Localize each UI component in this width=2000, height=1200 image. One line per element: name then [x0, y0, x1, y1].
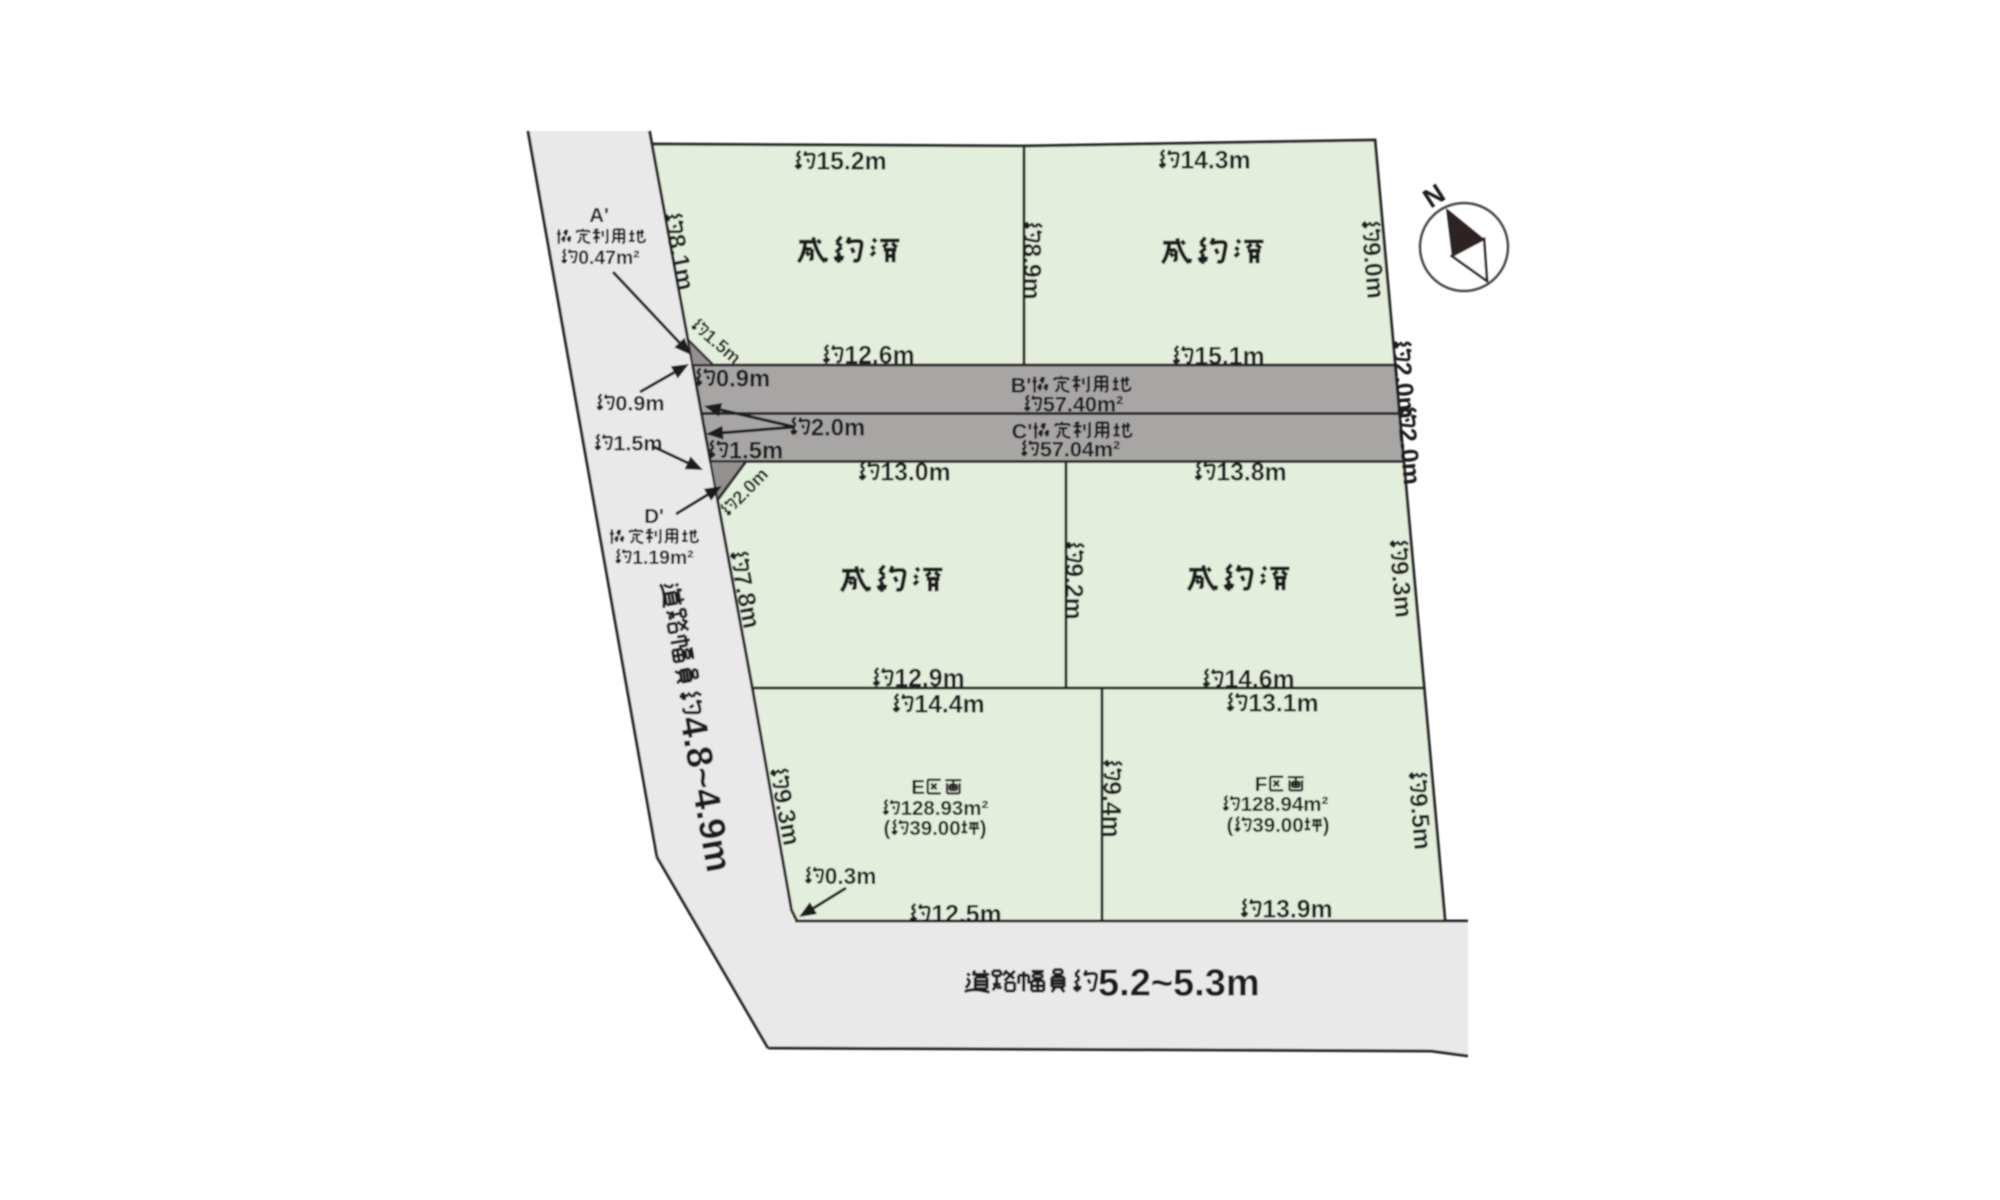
svg-text:(: ( — [884, 817, 891, 840]
svg-text:B': B' — [1011, 373, 1032, 398]
svg-text:14.4m: 14.4m — [914, 692, 984, 719]
svg-text:13.0m: 13.0m — [880, 460, 950, 487]
svg-text:15.2m: 15.2m — [816, 149, 886, 176]
svg-text:13.1m: 13.1m — [1248, 691, 1318, 718]
svg-text:2.0m: 2.0m — [1393, 427, 1425, 486]
svg-text:2.0m: 2.0m — [811, 414, 865, 441]
svg-text:13.8m: 13.8m — [1216, 460, 1286, 487]
svg-text:0.47m²: 0.47m² — [578, 247, 640, 269]
svg-text:8.9m: 8.9m — [1017, 243, 1044, 300]
svg-text:9.0m: 9.0m — [1357, 241, 1389, 300]
svg-text:N: N — [1418, 178, 1451, 214]
svg-text:5.2~5.3m: 5.2~5.3m — [1098, 963, 1260, 1005]
svg-text:14.6m: 14.6m — [1224, 667, 1294, 694]
svg-text:1.19m²: 1.19m² — [632, 547, 694, 569]
svg-text:15.1m: 15.1m — [1194, 344, 1264, 371]
svg-text:A': A' — [589, 204, 609, 227]
svg-text:1.5m: 1.5m — [613, 431, 662, 456]
svg-text:128.94m²: 128.94m² — [1241, 793, 1329, 816]
svg-text:9.2m: 9.2m — [1059, 563, 1086, 620]
svg-text:12.5m: 12.5m — [931, 902, 1001, 929]
svg-text:0.9m: 0.9m — [716, 365, 770, 392]
svg-text:9.4m: 9.4m — [1097, 781, 1124, 838]
svg-text:39.00: 39.00 — [1252, 814, 1303, 837]
svg-text:13.9m: 13.9m — [1262, 897, 1332, 924]
svg-text:57.40m²: 57.40m² — [1043, 392, 1123, 417]
svg-text:(: ( — [1227, 814, 1234, 837]
svg-text:12.9m: 12.9m — [894, 666, 964, 693]
svg-text:D': D' — [644, 505, 664, 528]
svg-text:39.00: 39.00 — [909, 817, 960, 840]
svg-text:57.04m²: 57.04m² — [1040, 437, 1120, 462]
svg-text:C': C' — [1012, 419, 1033, 444]
svg-text:E: E — [911, 776, 925, 799]
svg-text:9.3m: 9.3m — [1385, 560, 1417, 619]
svg-text:): ) — [980, 817, 987, 840]
svg-text:1.5m: 1.5m — [729, 437, 783, 464]
svg-text:0.9m: 0.9m — [615, 391, 664, 416]
svg-text:9.5m: 9.5m — [1404, 792, 1436, 851]
svg-text:): ) — [1323, 814, 1330, 837]
svg-text:14.3m: 14.3m — [1180, 148, 1250, 175]
svg-text:0.3m: 0.3m — [825, 863, 877, 889]
svg-text:12.6m: 12.6m — [844, 343, 914, 370]
